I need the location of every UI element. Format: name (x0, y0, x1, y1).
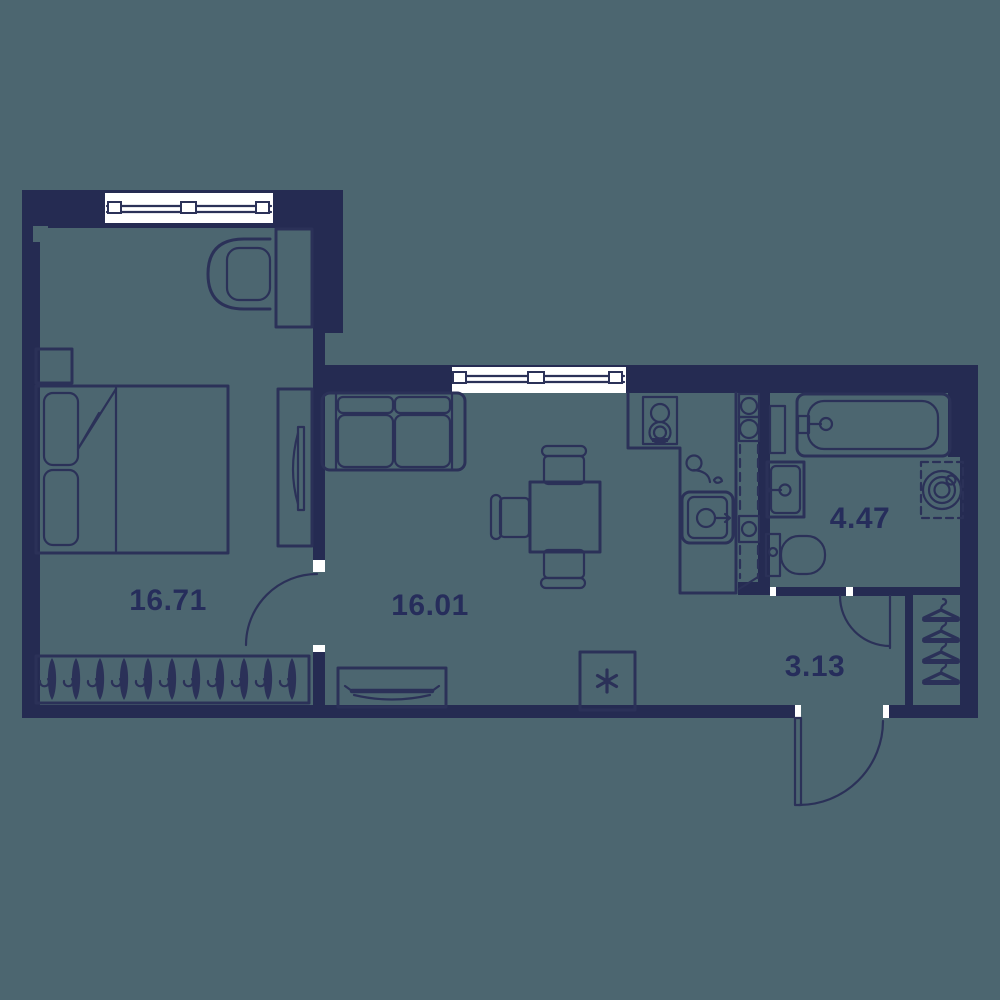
bathroom-fixtures (766, 394, 963, 576)
bathtub (797, 394, 950, 456)
dining-chair (541, 550, 585, 588)
hanger-icon (184, 658, 200, 700)
living-furniture (322, 393, 635, 710)
windows (105, 193, 626, 393)
hanger-icon (922, 620, 960, 643)
hanger-icon (112, 658, 128, 700)
dining-chair (542, 446, 586, 484)
kitchen-sink (682, 492, 733, 543)
wall-notch (33, 226, 48, 242)
fridge (580, 652, 635, 710)
hanger-icon (232, 658, 248, 700)
pillow (44, 470, 78, 545)
armchair (208, 239, 270, 309)
living-area-label: 16.01 (391, 589, 469, 622)
desk (276, 229, 312, 327)
wall-closet-top (905, 587, 965, 595)
wall-closet-left (905, 590, 913, 705)
bedroom-area-label: 16.71 (129, 584, 207, 617)
hanger-icon (40, 658, 56, 700)
toilet (766, 534, 825, 576)
bedroom-door (246, 560, 325, 652)
kitchen (628, 393, 759, 593)
bathroom-area-label: 4.47 (830, 502, 890, 535)
duct (770, 406, 785, 453)
sofa (322, 393, 465, 470)
nightstand (36, 349, 72, 383)
wall-bedroom-right-thick (313, 228, 343, 333)
snowflake-icon (598, 670, 617, 692)
hallway-closet (922, 599, 960, 685)
floor-plan-canvas: 16.71 16.01 4.47 3.13 (0, 0, 1000, 1000)
bedroom-furniture (36, 229, 312, 703)
washing-machine (921, 462, 963, 518)
wall-right-exterior (960, 365, 978, 717)
pillow (44, 393, 78, 465)
tv-cabinet (278, 389, 312, 546)
hanger-icon (88, 658, 104, 700)
hanger-icon (922, 662, 960, 685)
wardrobe-rail (36, 656, 309, 703)
walls (22, 190, 978, 718)
wall-bottom-right (883, 705, 978, 718)
hanger-icon (208, 658, 224, 700)
wall-bedroom-door-stub (313, 645, 325, 705)
hanger-icon (922, 599, 960, 622)
utility-shaft (739, 394, 759, 589)
dining-chair (491, 495, 529, 539)
wall-bathroom-bottom (770, 587, 905, 596)
hanger-icon (922, 641, 960, 664)
wall-shaft-bottom (738, 582, 770, 595)
tv-icon (298, 427, 304, 510)
bathroom-door (770, 587, 890, 648)
duvet-fold (78, 389, 116, 449)
hanger-icon (256, 658, 272, 700)
hanger-icon (64, 658, 80, 700)
tv-stand (338, 668, 446, 707)
dining-table (530, 482, 600, 552)
dining-set (491, 446, 600, 588)
wall-top-living (313, 365, 978, 393)
bathroom-sink (767, 462, 805, 517)
bedroom-window (105, 193, 273, 223)
kitchen-faucet (687, 456, 723, 483)
hanger-icon (160, 658, 176, 700)
living-window (452, 367, 626, 393)
floor-plan: 16.71 16.01 4.47 3.13 (0, 0, 1000, 1000)
hallway-area-label: 3.13 (785, 650, 845, 683)
bed (36, 386, 228, 553)
hanger-icon (136, 658, 152, 700)
entrance-door (795, 705, 889, 805)
hanger-icon (280, 658, 296, 700)
cooktop (643, 397, 677, 444)
